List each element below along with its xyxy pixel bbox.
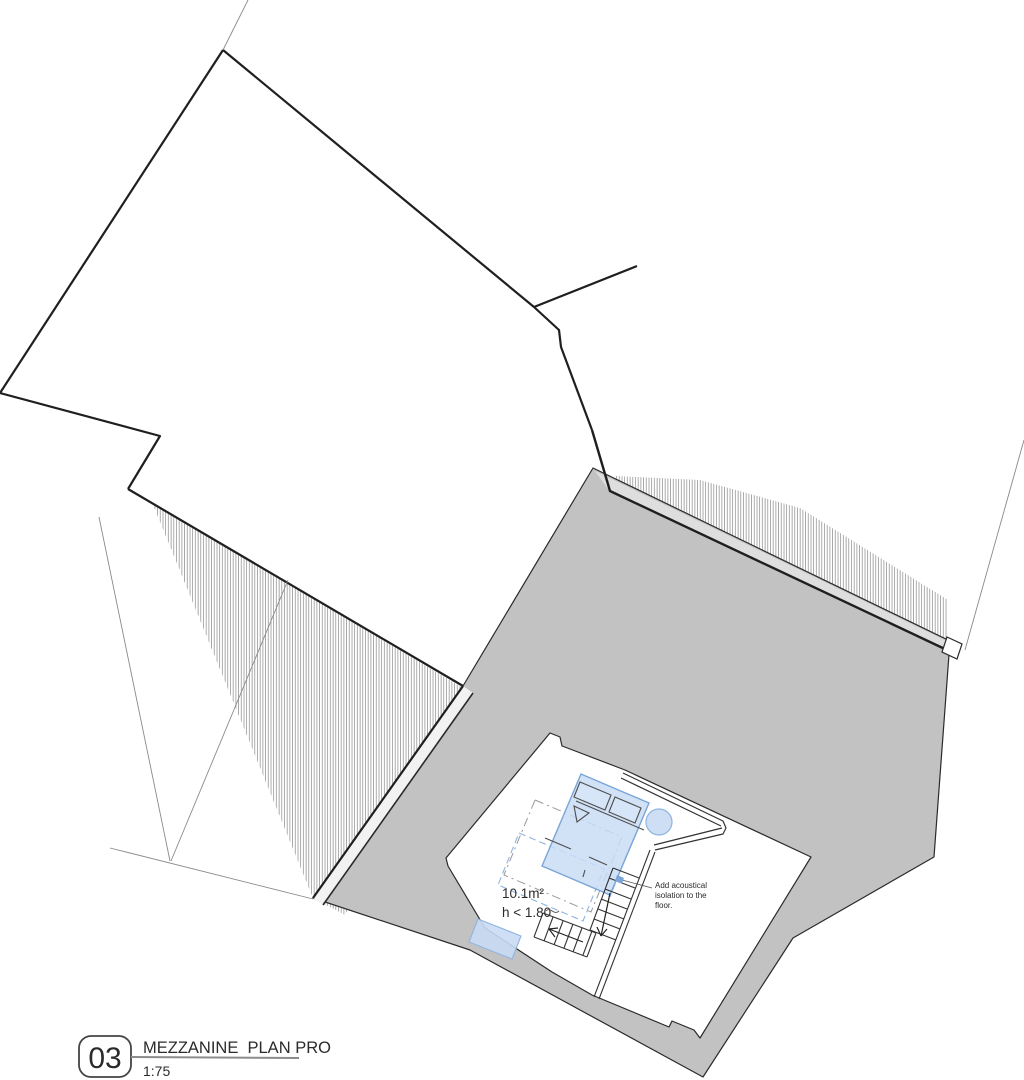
- drawing-title: MEZZANINE PLAN PRO: [143, 1039, 331, 1057]
- annotation-note-line1: Add acoustical: [655, 881, 707, 890]
- annotation-note: Add acoustical isolation to the floor.: [655, 881, 707, 910]
- roof-ridge-left-edge: [0, 50, 223, 393]
- site-line-right: [965, 440, 1024, 650]
- drawing-number: 03: [88, 1042, 121, 1075]
- bedside-table: [646, 809, 672, 835]
- roof-valley-line: [534, 307, 592, 430]
- roof-right-edge: [223, 50, 534, 307]
- stair-arrow-left: [549, 928, 583, 942]
- title-divider: [131, 1057, 299, 1058]
- drawing-sheet: 10.1m² h < 1.80 Add acoustical isolation…: [0, 0, 1024, 1080]
- annotation-note-line3: floor.: [655, 901, 672, 910]
- site-line-left: [99, 517, 170, 861]
- annotation-leader-line: [622, 880, 652, 888]
- site-line-bottom: [110, 848, 313, 899]
- floor-plan-canvas: 10.1m² h < 1.80 Add acoustical isolation…: [0, 0, 1024, 1080]
- roof-spur-line: [534, 266, 637, 307]
- drawing-scale: 1:75: [143, 1063, 170, 1079]
- room-area-label: 10.1m²: [502, 886, 545, 901]
- annotation-note-line2: isolation to the: [655, 891, 707, 900]
- ridge-extension-line: [223, 0, 248, 50]
- roof-eave-jog: [0, 393, 160, 489]
- room-height-label: h < 1.80: [502, 905, 551, 920]
- title-block: 03 MEZZANINE PLAN PRO 1:75: [79, 1036, 331, 1079]
